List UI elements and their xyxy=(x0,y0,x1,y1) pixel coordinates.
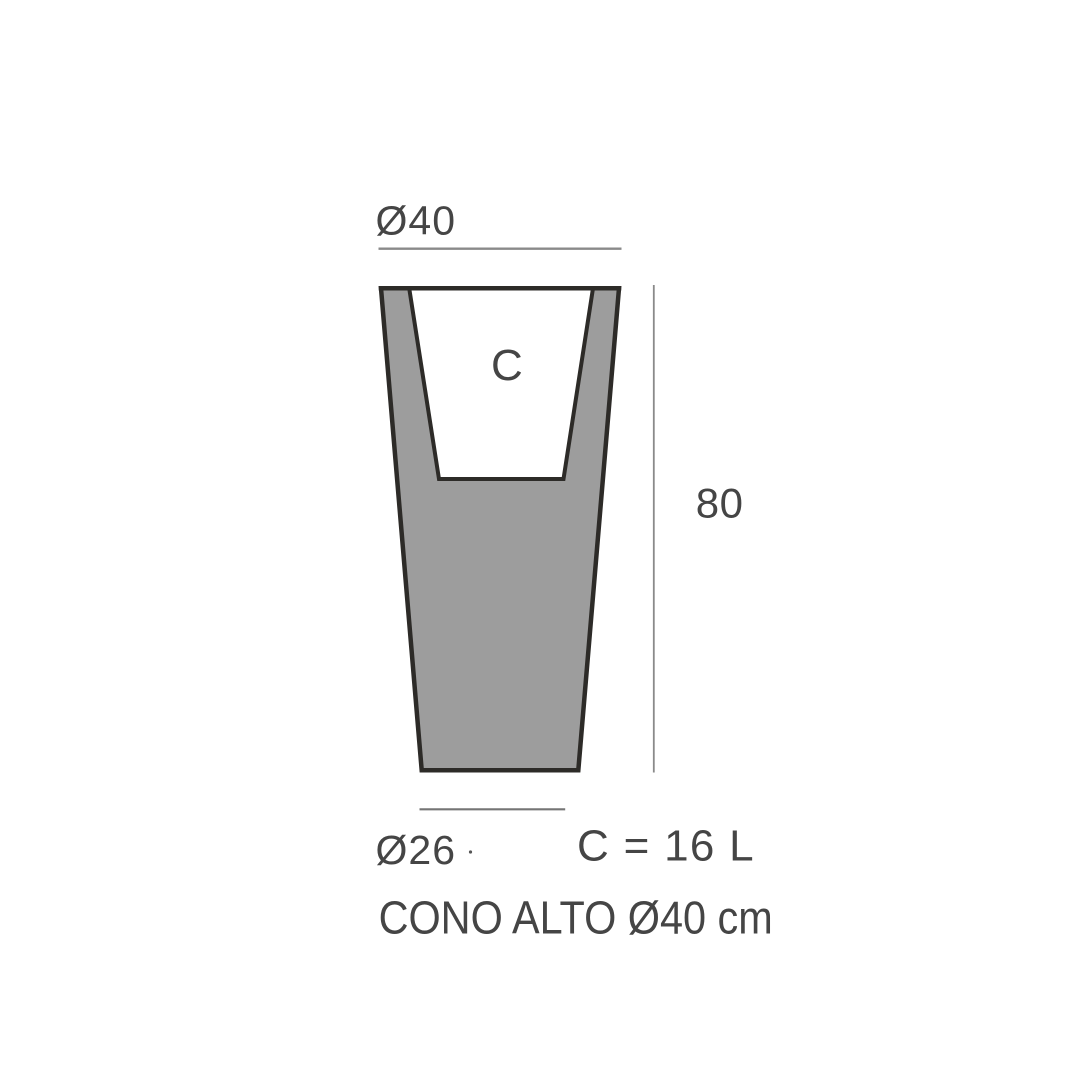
svg-text:CONO ALTO Ø40 cm: CONO ALTO Ø40 cm xyxy=(379,893,773,945)
svg-text:Ø26: Ø26 xyxy=(376,827,457,873)
svg-text:C: C xyxy=(491,341,523,390)
svg-text:Ø40: Ø40 xyxy=(376,197,457,243)
svg-text:80: 80 xyxy=(696,480,744,527)
svg-text:C = 16 L: C = 16 L xyxy=(577,822,755,871)
